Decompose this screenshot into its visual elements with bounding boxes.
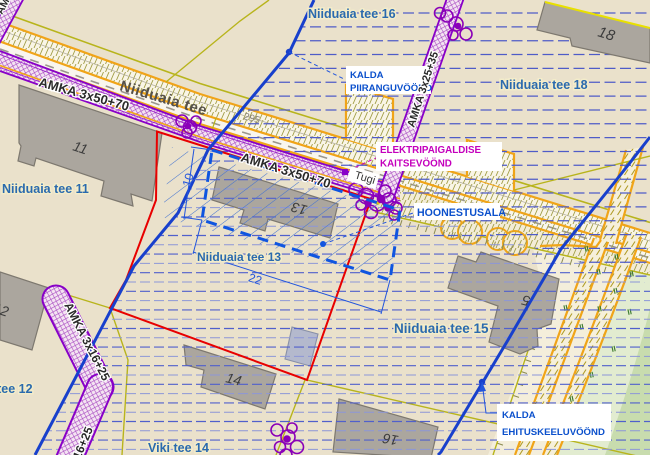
svg-text:16: 16 [381,430,399,448]
svg-text:Niiduaia tee 13: Niiduaia tee 13 [197,250,281,264]
svg-text:EHITUSKEELUVÖÖND: EHITUSKEELUVÖÖND [502,427,605,438]
svg-text:Viki tee 14: Viki tee 14 [148,441,209,455]
svg-text:Niiduaia tee 15: Niiduaia tee 15 [394,321,489,336]
svg-text:HOONESTUSALA: HOONESTUSALA [417,207,506,219]
svg-text:KAITSEVÖÖND: KAITSEVÖÖND [380,159,452,170]
svg-text:Niiduaia tee 18: Niiduaia tee 18 [500,78,588,92]
svg-text:Niiduaia tee 11: Niiduaia tee 11 [2,182,89,196]
svg-text:ELEKTRIPAIGALDISE: ELEKTRIPAIGALDISE [380,145,482,156]
svg-text:KALDA: KALDA [502,410,536,421]
svg-text:Niiduaia tee 16: Niiduaia tee 16 [308,7,396,21]
svg-text:Niiduaia tee 12: Niiduaia tee 12 [0,382,33,396]
svg-text:KALDA: KALDA [350,70,384,81]
